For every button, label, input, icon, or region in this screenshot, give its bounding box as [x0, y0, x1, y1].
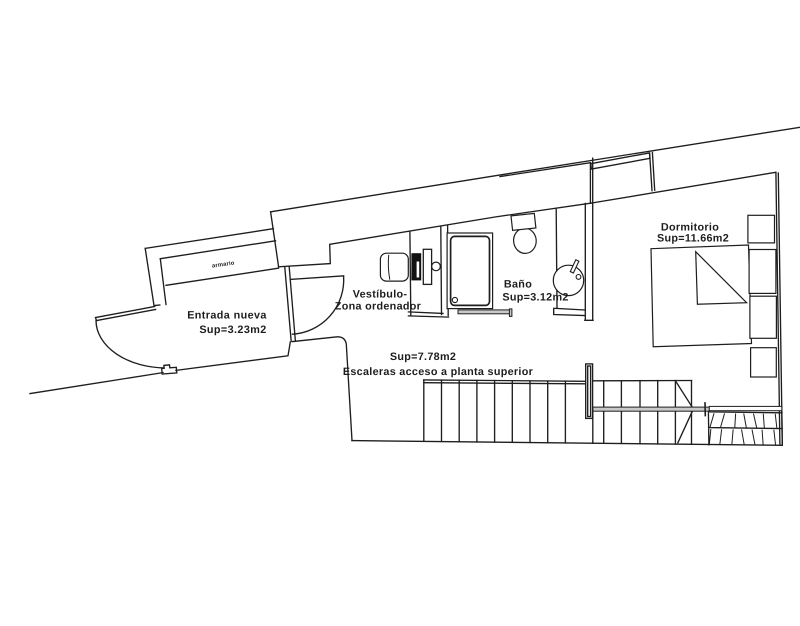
svg-text:Escaleras acceso a planta supe: Escaleras acceso a planta superior [343, 366, 534, 378]
svg-text:Vestíbulo-: Vestíbulo- [353, 289, 408, 301]
svg-text:Baño: Baño [504, 279, 532, 291]
svg-text:Dormitorio: Dormitorio [661, 221, 719, 233]
svg-text:Sup=3.12m2: Sup=3.12m2 [502, 292, 568, 304]
svg-text:Zona ordenador: Zona ordenador [335, 301, 422, 313]
svg-text:Sup=3.23m2: Sup=3.23m2 [199, 324, 266, 336]
svg-text:armario: armario [212, 259, 236, 269]
svg-text:Entrada nueva: Entrada nueva [187, 310, 267, 322]
svg-text:Sup=7.78m2: Sup=7.78m2 [390, 351, 456, 363]
svg-text:Sup=11.66m2: Sup=11.66m2 [657, 233, 729, 245]
